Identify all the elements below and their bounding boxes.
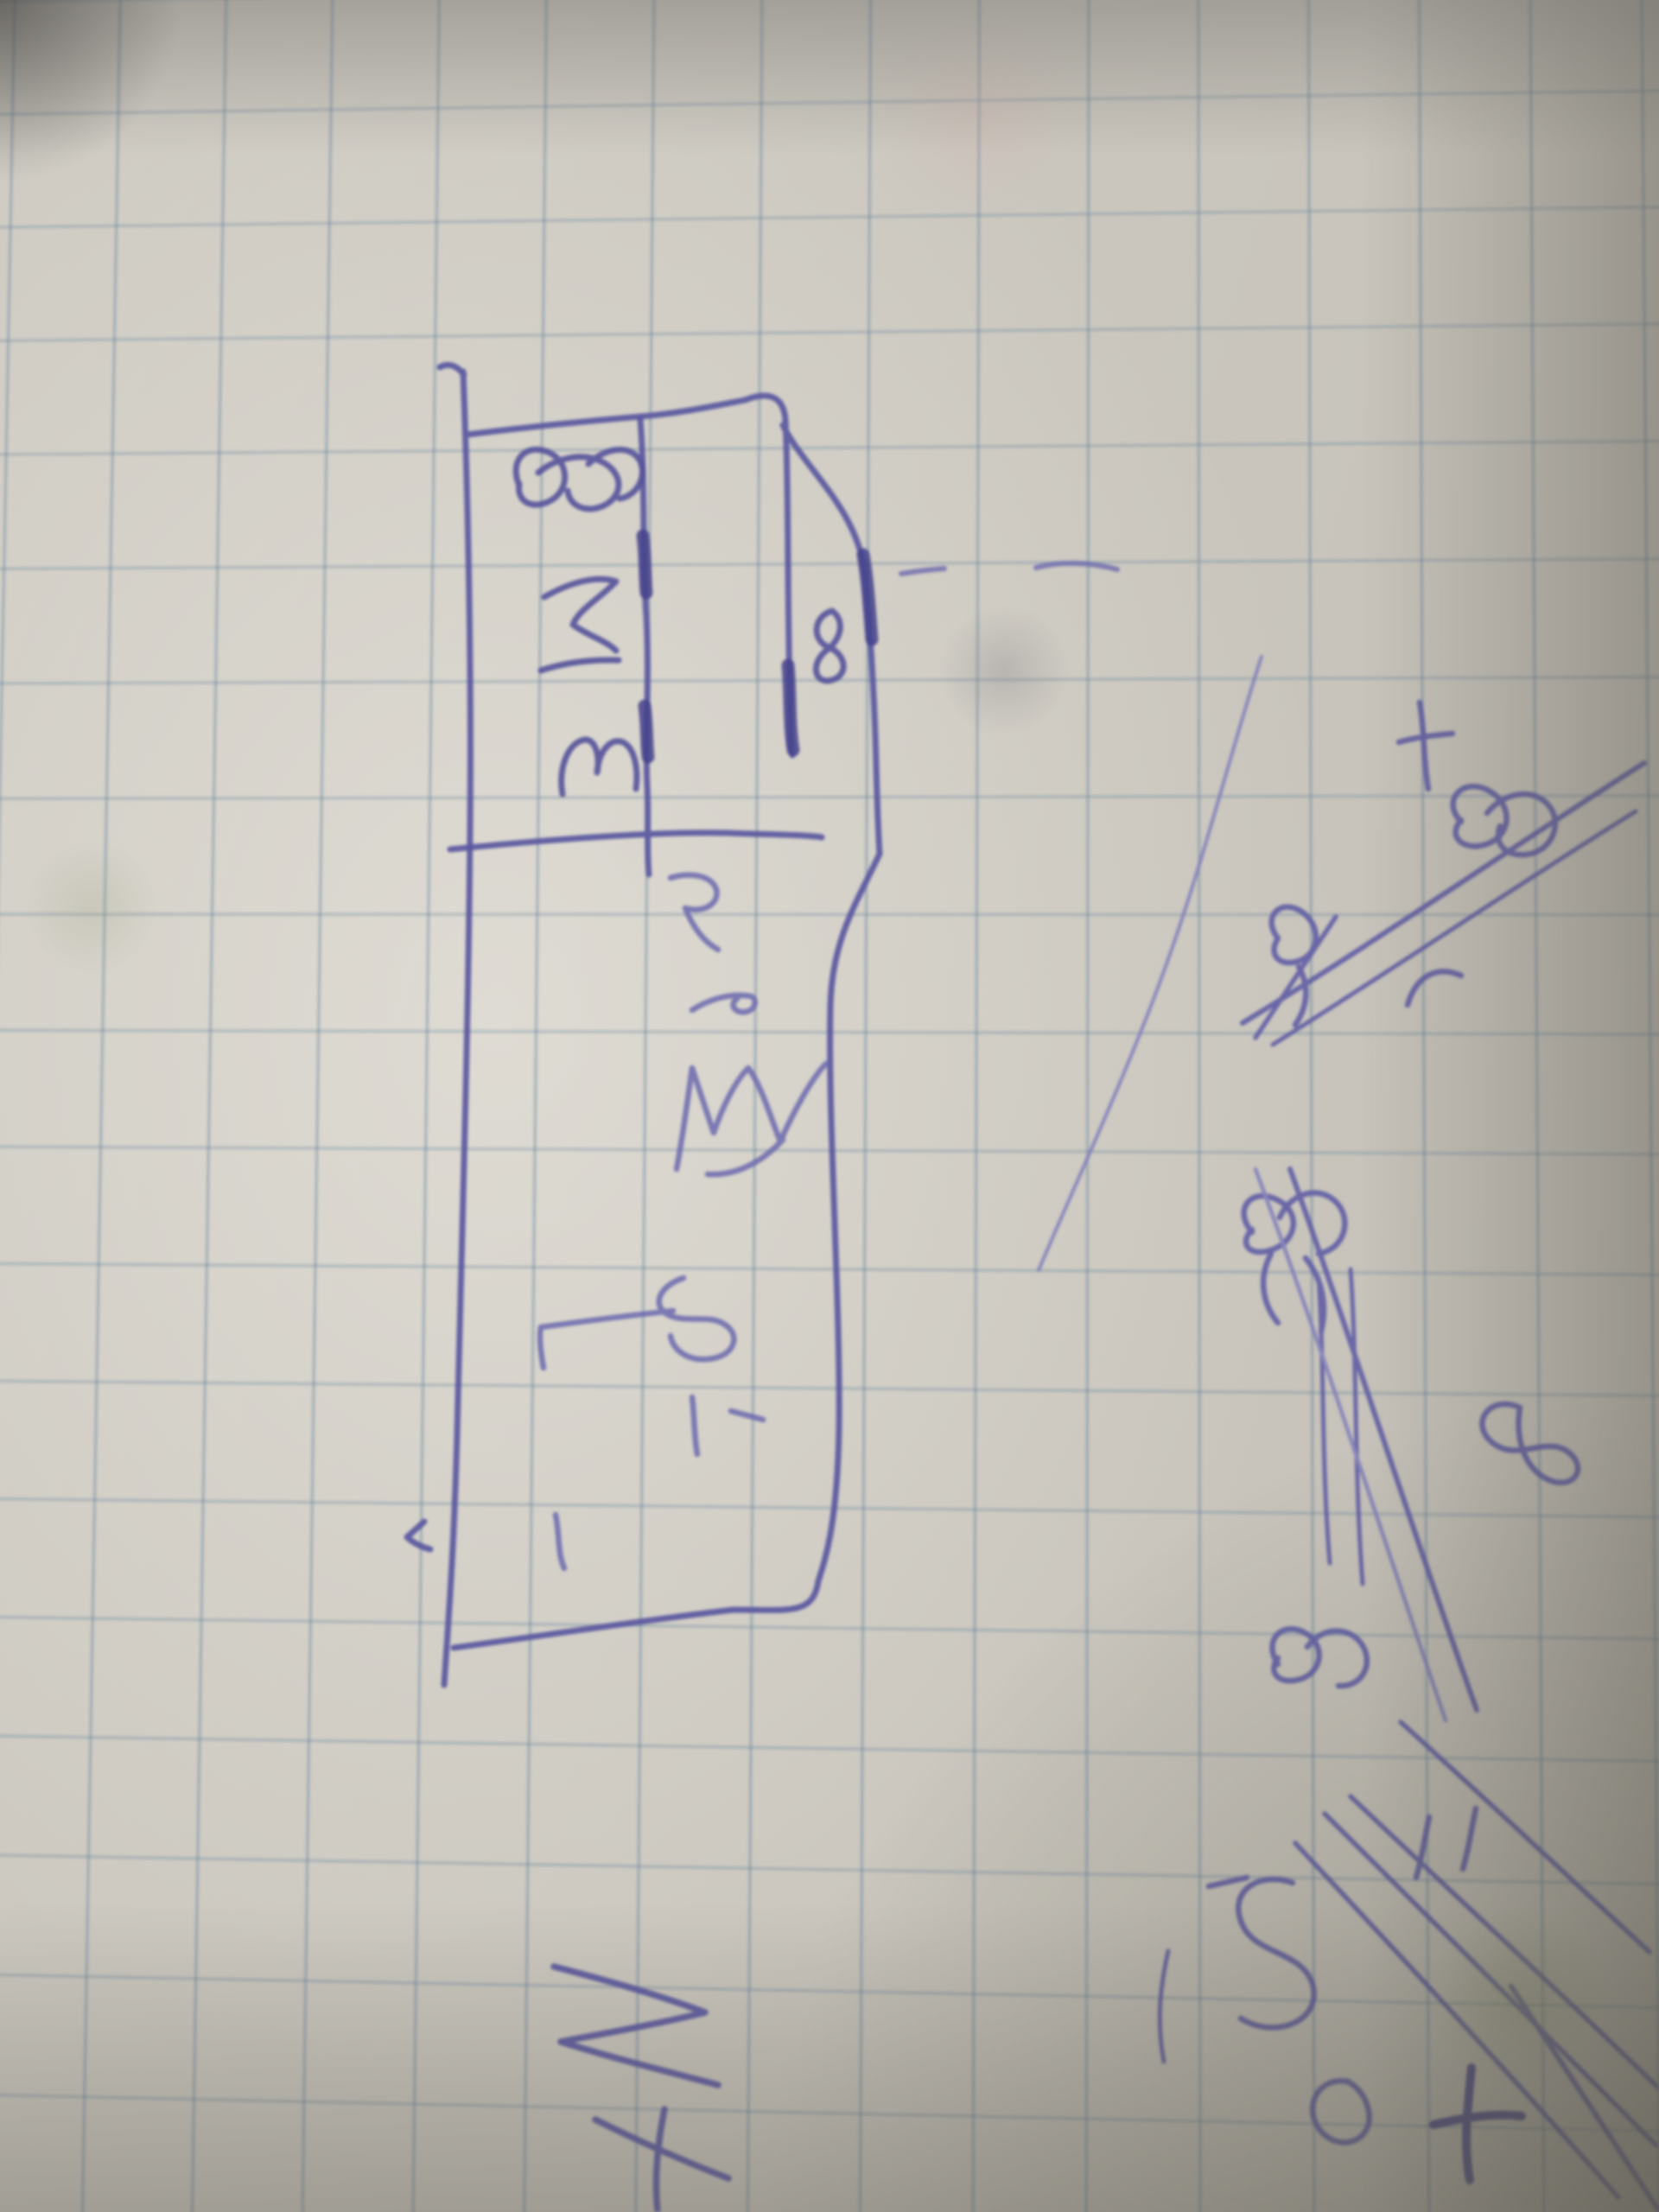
handwritten-note-ze: з <box>625 1286 739 1350</box>
rect-left-edge <box>444 372 470 1685</box>
notebook-photo: 8 м 3 8 ч ь му з № 4 <box>0 0 1659 2212</box>
note-glyph-mu <box>677 1064 826 1174</box>
handwritten-note-mu: му <box>570 1054 670 1188</box>
scribble-loops-a <box>1453 786 1555 855</box>
rect-corner-arrow <box>407 1522 430 1549</box>
divider-horizontal <box>450 833 822 849</box>
handwritten-length-digit: 8 <box>776 614 875 682</box>
rect-bottom-edge <box>454 1581 818 1648</box>
scribble-cluster-bottom <box>1160 1629 1658 2209</box>
scribble-loops-c <box>1272 1629 1367 1686</box>
divider-vertical <box>640 419 649 874</box>
handwritten-problem-sign: № <box>540 1948 674 2087</box>
scribble-loop-o <box>1313 2081 1370 2142</box>
rect-top-edge <box>467 400 745 435</box>
long-thin-arc <box>1039 657 1262 1270</box>
scribble-four-stroke <box>1399 702 1452 789</box>
scribble-s-five <box>1209 1878 1314 2028</box>
handwritten-width-unit: м <box>502 575 626 670</box>
scribble-sideways-eight <box>1482 1404 1578 1483</box>
handwritten-problem-number: 4 <box>566 2119 701 2210</box>
scribble-dark-four <box>1433 2068 1522 2180</box>
scribble-two-tick <box>1408 971 1461 1005</box>
pen-drawing <box>0 0 1659 2212</box>
dash-1 <box>901 569 944 574</box>
handwritten-note-soft: ь <box>685 987 737 1017</box>
strike-diagonal-2 <box>1255 1169 1446 1720</box>
photo-blur-layer: 8 м 3 8 ч ь му з № 4 <box>0 0 1659 2212</box>
handwritten-width-digit: 3 <box>542 741 628 797</box>
rect-right-edge-lower <box>818 854 880 1581</box>
note-small-tick <box>556 1515 564 1568</box>
scribble-side-curl <box>1160 1951 1168 2062</box>
scribble-daisy-loops <box>1244 1193 1345 1332</box>
blob-divider-1 <box>643 536 646 593</box>
scribble-cluster-middle <box>1244 1169 1578 1720</box>
note-equals-tick <box>692 1397 763 1454</box>
scribble-cluster-top <box>1039 657 1644 1270</box>
inner-note-text <box>540 875 826 1568</box>
dash-2 <box>1036 563 1117 569</box>
side-dashes <box>901 563 1117 574</box>
handwritten-crossed-digit: 8 <box>526 450 604 499</box>
blob-divider-2 <box>645 706 648 757</box>
blob-right-edge <box>788 665 793 750</box>
rect-left-top-hook <box>440 365 464 375</box>
handwritten-note-ch: ч <box>640 887 737 946</box>
strike-diagonal-1 <box>1290 1169 1477 1710</box>
